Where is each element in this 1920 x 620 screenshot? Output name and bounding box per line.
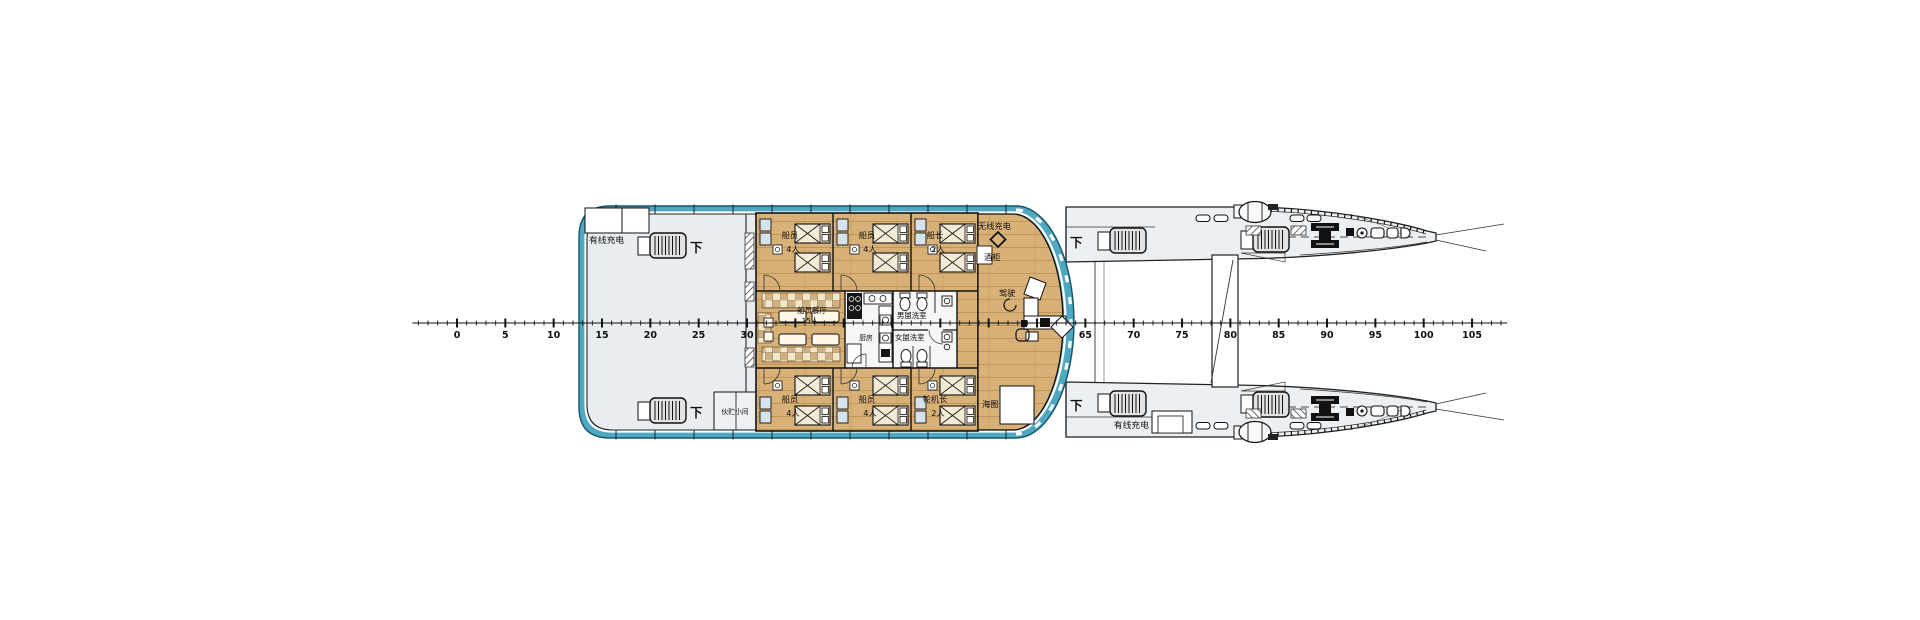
label-wired-charging-hull: 有线充电: [1114, 419, 1149, 431]
ruler-label: 20: [644, 330, 658, 341]
mess-table: [812, 334, 839, 345]
ruler-label: 5: [502, 330, 509, 341]
cabin-capacity-label: 4人: [863, 244, 876, 254]
ruler-label: 95: [1369, 330, 1382, 341]
label-helm: 驾驶: [999, 288, 1015, 298]
ruler-label: 70: [1127, 330, 1141, 341]
label-down-hull-bottom: 下: [1070, 398, 1083, 413]
hull-charging-box: [1152, 411, 1192, 433]
charging-cabinet: [622, 208, 649, 233]
cabin-label: 船长: [927, 230, 943, 240]
label-washroom-women: 女盥洗室: [895, 333, 925, 342]
ruler-label: 75: [1175, 330, 1188, 341]
label-chart-table: 海图: [982, 399, 998, 409]
ruler-label: 100: [1414, 330, 1434, 341]
toilet-icon: [901, 350, 911, 368]
ruler-label: 85: [1272, 330, 1285, 341]
cabin-capacity-label: 4人: [863, 408, 876, 418]
label-down-saloon-bottom: 下: [690, 405, 703, 420]
sink-icon: [773, 245, 782, 254]
locker-icon: [837, 233, 848, 245]
cabin-capacity-label: 2人: [931, 408, 944, 418]
cabin-capacity-label: 4人: [786, 408, 799, 418]
sink-icon: [850, 245, 859, 254]
toilet-icon: [917, 293, 927, 311]
toilet-icon: [900, 293, 910, 311]
cabin-label: 轮机长: [923, 394, 948, 404]
mess-table: [779, 334, 806, 345]
ruler-label: 25: [692, 330, 705, 341]
sink-icon: [928, 381, 937, 390]
ruler-label: 80: [1224, 330, 1238, 341]
label-down-hull-top: 下: [1070, 235, 1083, 250]
ruler-label: 90: [1320, 330, 1334, 341]
ruler-label: 10: [547, 330, 561, 341]
locker-icon: [837, 397, 848, 409]
cabin-capacity-label: 2人: [931, 244, 944, 254]
sink-icon: [850, 381, 859, 390]
label-galley: 厨房: [859, 333, 873, 342]
ruler-label: 30: [740, 330, 754, 341]
label-wireless-charging: 无线充电: [978, 221, 1011, 231]
locker-icon: [760, 397, 771, 409]
sink-icon: [773, 381, 782, 390]
ruler-label: 65: [1079, 330, 1092, 341]
ruler-label: 105: [1462, 330, 1482, 341]
cabin-label: 船员: [782, 394, 798, 404]
label-wine-cabinet: 酒柜: [984, 252, 1000, 262]
locker-icon: [915, 219, 926, 231]
label-washroom-men: 男盥洗室: [897, 311, 927, 320]
starboard-demihull: [1066, 382, 1504, 443]
locker-icon: [760, 233, 771, 245]
cabin-label: 船员: [859, 394, 875, 404]
locker-icon: [915, 411, 926, 423]
label-down-saloon-top: 下: [690, 240, 703, 255]
label-store-room: 伙贮小间: [721, 407, 748, 416]
label-mess-room: 船员餐厅: [797, 306, 827, 315]
label-mess-capacity: 15人: [802, 316, 819, 325]
locker-icon: [837, 411, 848, 423]
charging-cabinet: [585, 208, 622, 233]
port-demihull: [1066, 202, 1504, 263]
bench-seat: [762, 347, 840, 362]
ruler-label: 0: [454, 330, 461, 341]
cabin-label: 船员: [859, 230, 875, 240]
cabin-capacity-label: 4人: [786, 244, 799, 254]
catamaran-deck-plan-drawing: 有线充电 下 下 有线充电 下 下 伙贮小间: [0, 0, 1920, 620]
label-wired-charging-saloon: 有线充电: [589, 234, 624, 246]
chart-table-box: [1000, 386, 1034, 424]
boarding-ramp: [1212, 255, 1238, 387]
toilet-icon: [917, 350, 927, 368]
locker-icon: [915, 233, 926, 245]
locker-icon: [760, 411, 771, 423]
ruler-label: 15: [595, 330, 608, 341]
locker-icon: [760, 219, 771, 231]
deck-plan-page: 有线充电 下 下 有线充电 下 下 伙贮小间: [0, 0, 1920, 620]
cabin-label: 船员: [782, 230, 798, 240]
locker-icon: [837, 219, 848, 231]
